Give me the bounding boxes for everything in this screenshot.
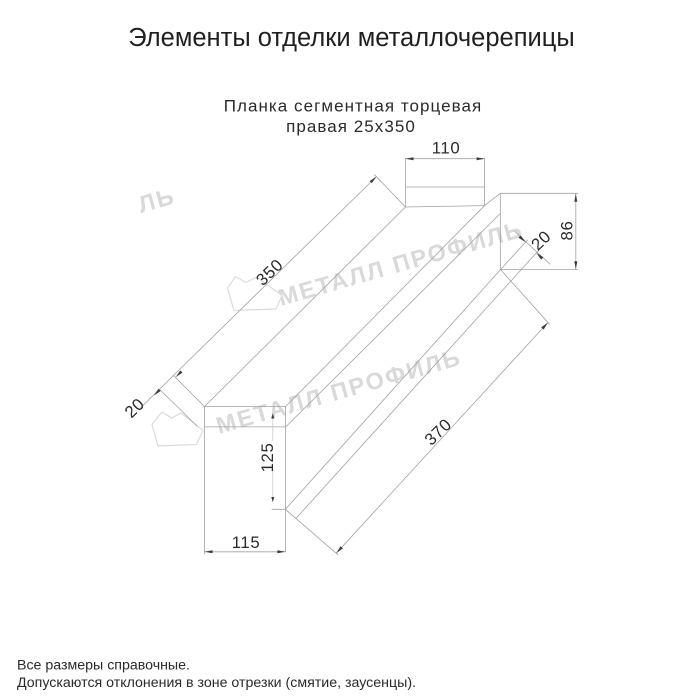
svg-text:115: 115 [232,533,261,552]
svg-text:Элементы отделки металлочерепи: Элементы отделки металлочерепицы [128,24,574,52]
svg-text:86: 86 [558,221,577,241]
svg-text:Все размеры справочные.: Все размеры справочные. [17,657,190,673]
svg-text:Планка сегментная торцевая: Планка сегментная торцевая [224,97,483,116]
svg-text:125: 125 [258,443,277,473]
svg-text:Допускаются отклонения в зоне: Допускаются отклонения в зоне отрезки (с… [17,675,416,691]
svg-text:110: 110 [432,139,461,158]
svg-text:правая 25х350: правая 25х350 [286,117,416,136]
